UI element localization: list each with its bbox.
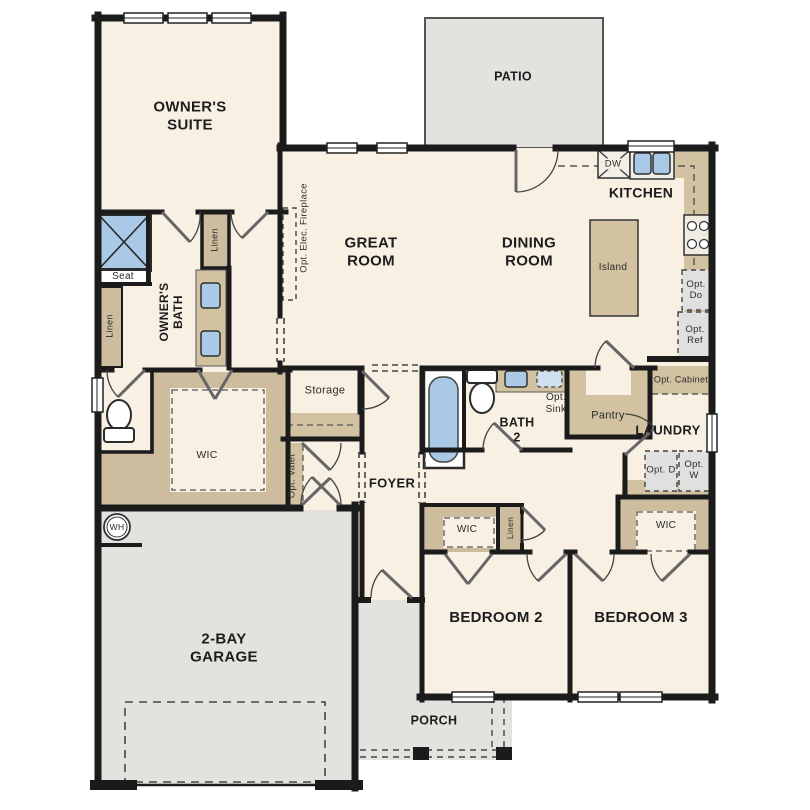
opt-cabinet-label: Opt. Cabinet [654,375,708,386]
linen-bath-wall-label: Linen [105,314,116,338]
laundry-label: LAUNDRY [635,422,700,437]
wic-bedroom2-label: WIC [457,524,477,536]
stove-icon [684,215,712,255]
owners-bath-label: OWNER'S BATH [157,272,185,352]
garage-label: 2-BAY GARAGE [179,630,269,665]
opt-valet-label: Opt. Valet [286,454,297,499]
wic-owners-label: WIC [196,449,217,461]
opt-sink-box [537,371,562,387]
bedroom3-label: BEDROOM 3 [594,609,688,627]
porch-post-left [413,747,429,760]
bathtub-icon [424,370,464,468]
linen-bath-entry-label: Linen [210,228,221,252]
opt-washer-label: Opt. W [679,459,709,481]
bath2-sink-icon [505,371,527,387]
opt-elec-fireplace-label: Opt. Elec. Fireplace [298,183,309,272]
foyer-label: FOYER [369,475,415,490]
linen-hall-label: Linen [505,517,515,539]
patio-label: PATIO [494,70,532,85]
owners-suite-label: OWNER'S SUITE [140,98,240,133]
bedroom2-label: BEDROOM 2 [449,609,543,627]
wic-bedroom3-label: WIC [656,520,676,532]
island-label: Island [599,262,628,274]
seat-label: Seat [112,271,134,283]
bath2-toilet-icon [467,370,497,413]
owners-toilet-icon [104,400,134,442]
dishwasher-label: DW [604,158,622,169]
opt-double-oven-label: Opt. Do [681,279,711,301]
porch-post-right [496,747,512,760]
opt-dryer-label: Opt. D [646,464,676,475]
opt-refrigerator-label: Opt. Ref [680,324,710,346]
floor-plan-drawing [0,0,810,810]
pantry-label: Pantry [591,410,625,423]
porch-label: PORCH [411,714,458,729]
opt-sink-label: Opt. Sink [538,392,574,416]
kitchen-label: KITCHEN [609,185,673,202]
opt-elec-fireplace-box [283,208,296,300]
water-heater-label: WH [110,522,125,532]
bath2-label: BATH 2 [495,415,539,445]
dining-room-label: DINING ROOM [489,234,569,269]
floor-plan: OWNER'S SUITE PATIO GREAT ROOM DINING RO… [0,0,810,810]
great-room-label: GREAT ROOM [331,234,411,269]
storage-label: Storage [305,385,346,398]
